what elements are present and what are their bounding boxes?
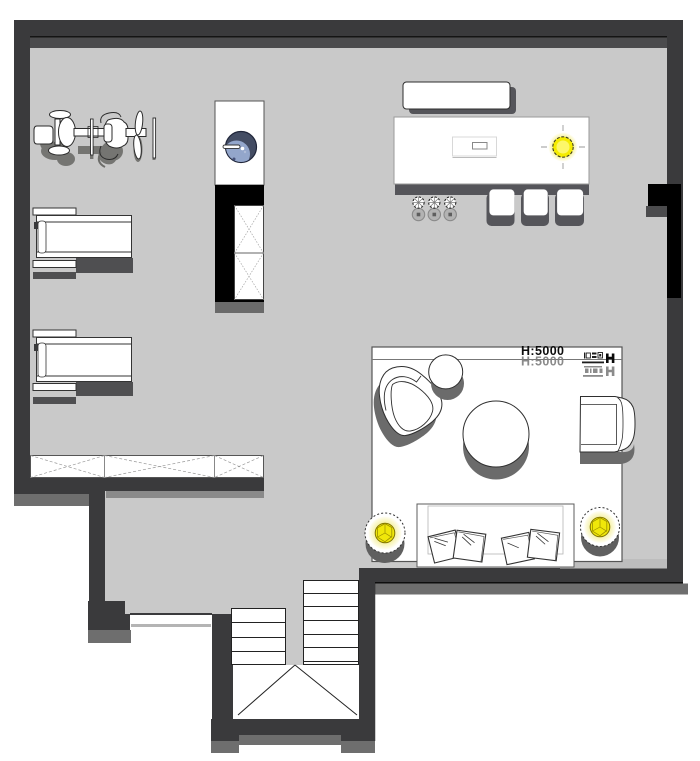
- svg-text:H:5000: H:5000: [521, 344, 564, 358]
